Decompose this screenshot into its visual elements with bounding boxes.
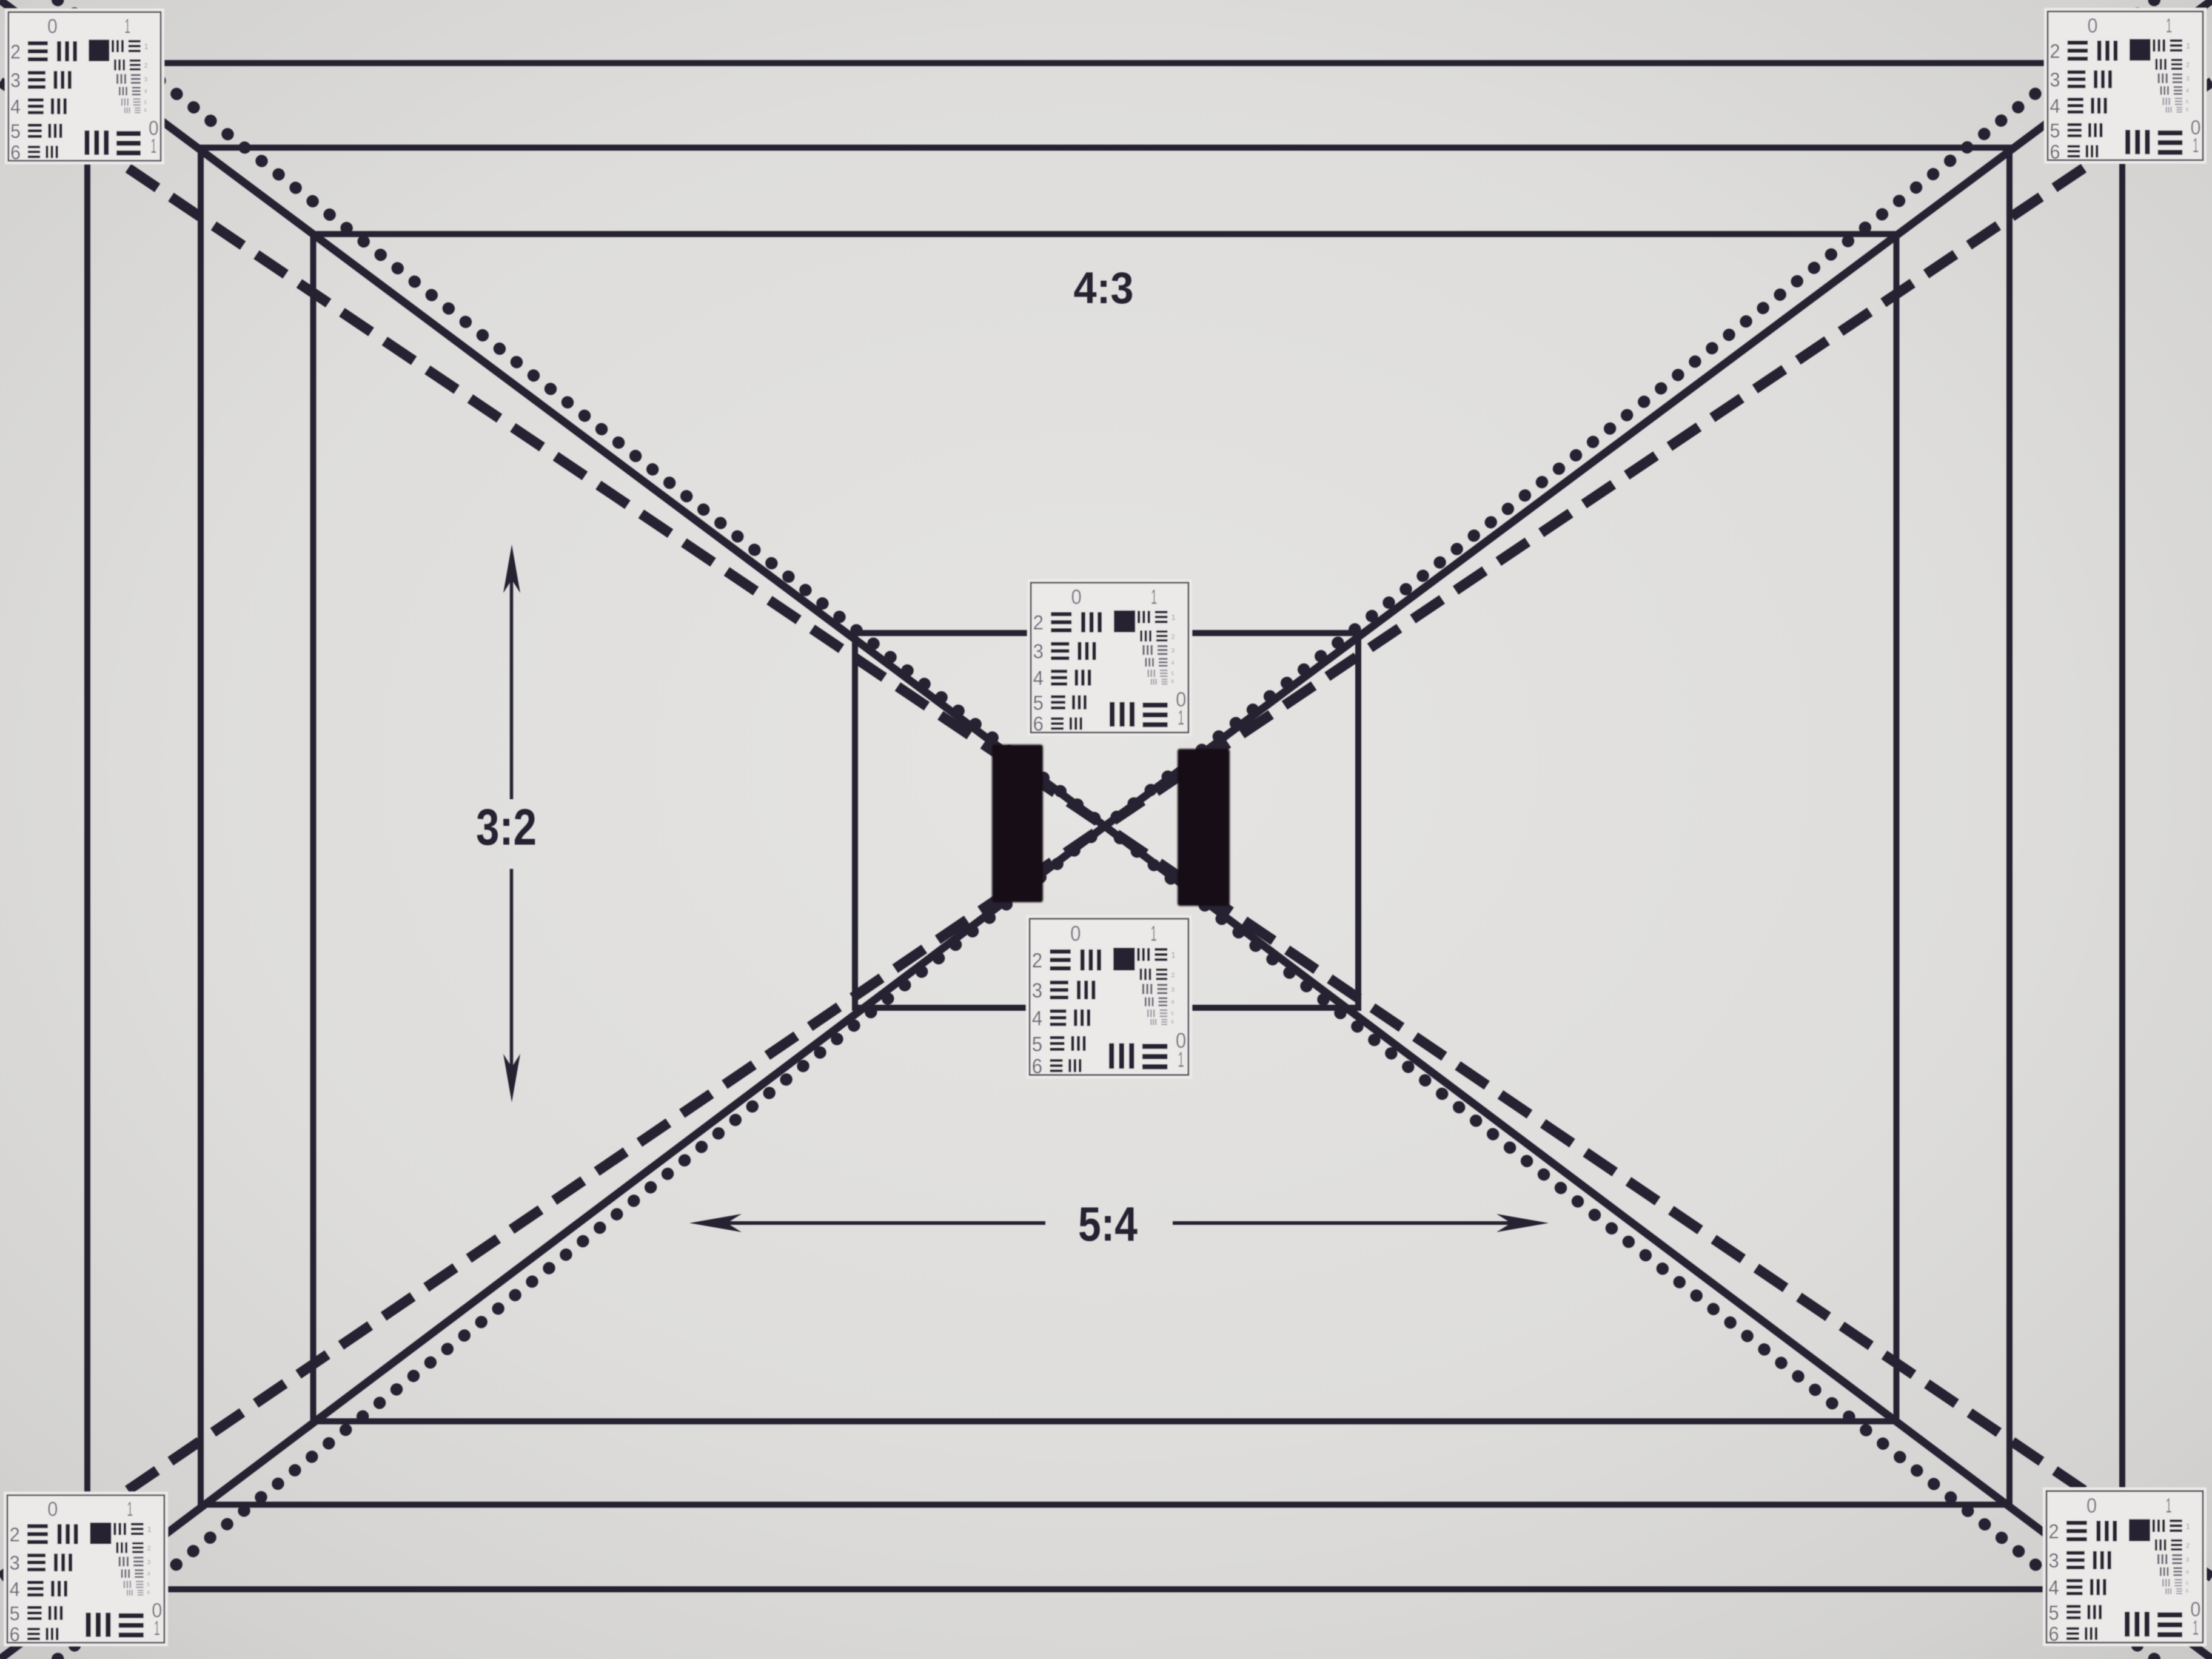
svg-text:4:3: 4:3 <box>1074 264 1134 313</box>
svg-text:5:4: 5:4 <box>1078 1197 1138 1251</box>
svg-text:3:2: 3:2 <box>476 799 537 856</box>
